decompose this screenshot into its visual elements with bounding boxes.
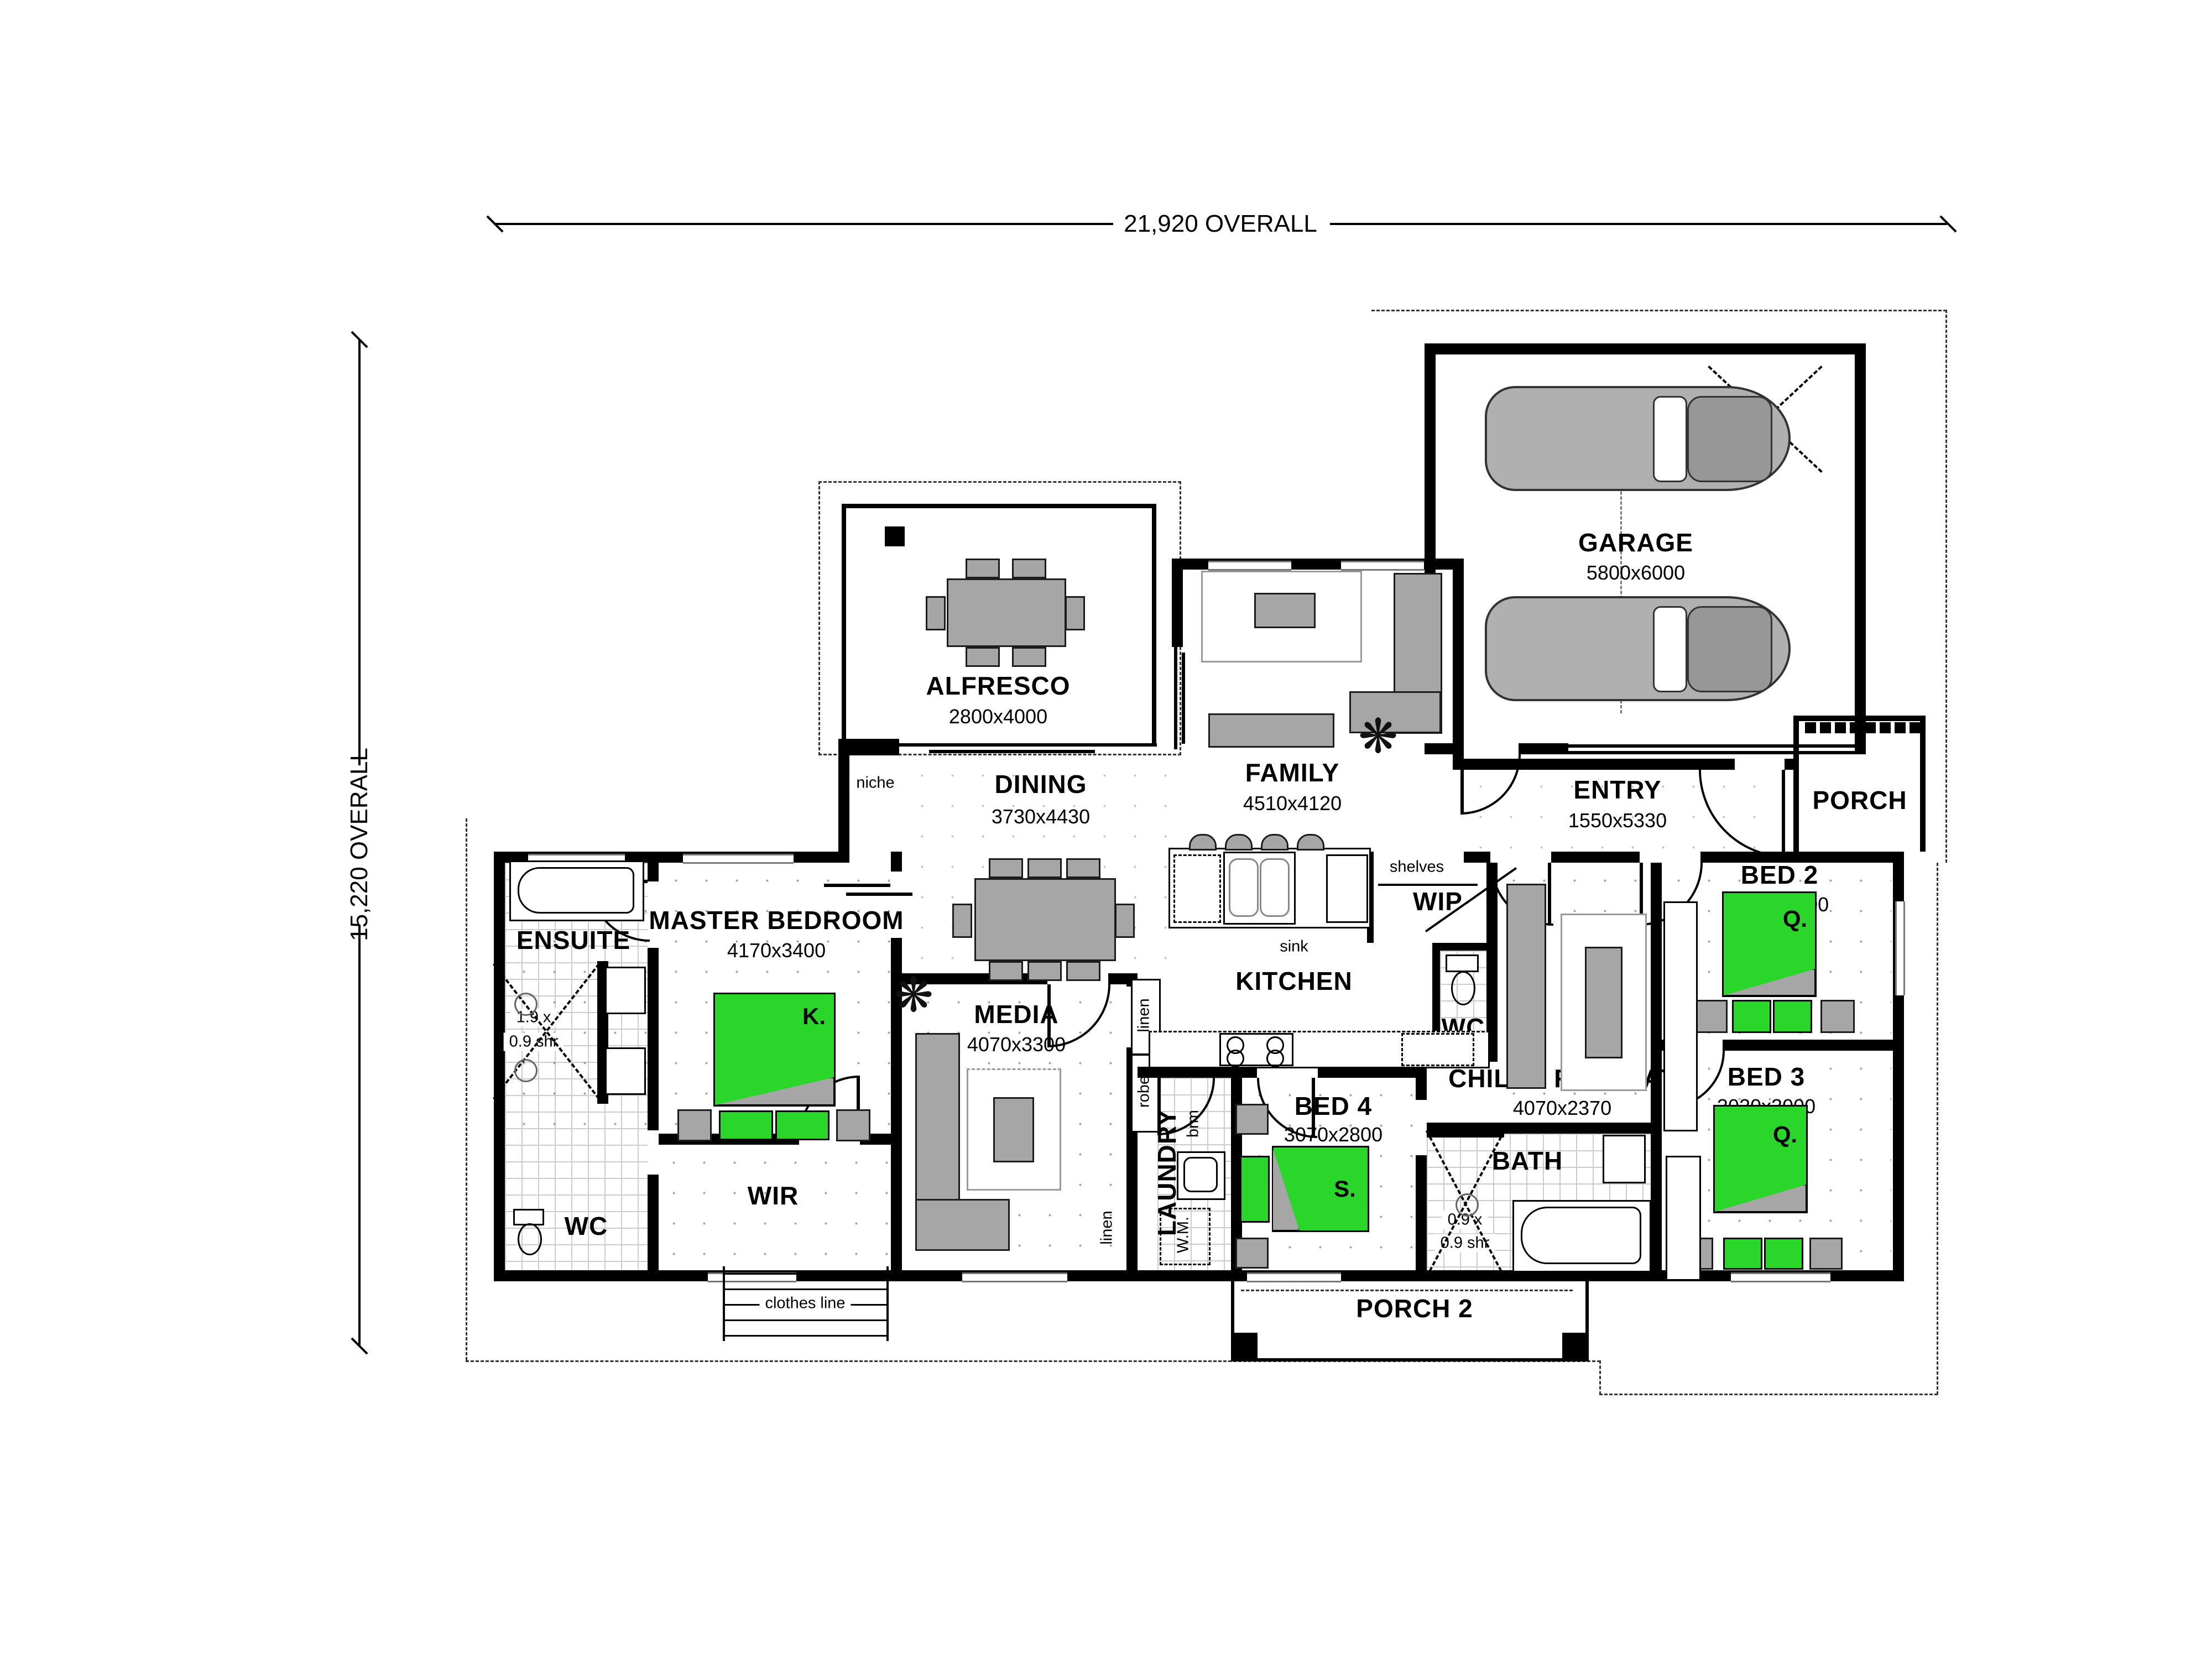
wing-wall-seg1 bbox=[1464, 852, 1490, 863]
family-window-2 bbox=[1341, 561, 1424, 571]
ensuite-shower-rose-2 bbox=[514, 1059, 538, 1082]
cooktop-burner-4 bbox=[1266, 1050, 1284, 1067]
master-nightstand-left bbox=[677, 1109, 712, 1141]
dining-table bbox=[974, 878, 1116, 961]
entry-door-jamb bbox=[1785, 759, 1793, 770]
porch-louvre-6 bbox=[1880, 722, 1891, 733]
family-slider-left2 bbox=[1182, 653, 1185, 744]
hall-wall-seg2 bbox=[1318, 1067, 1427, 1078]
room-label-family: FAMILY bbox=[1245, 758, 1339, 787]
car-1-roof bbox=[1687, 396, 1772, 482]
eaves-line-bottom-right bbox=[1599, 1394, 1938, 1395]
eaves-line-top bbox=[1371, 310, 1947, 311]
childs-retreat-sofa bbox=[1506, 884, 1546, 1089]
alfresco-wall-left bbox=[842, 504, 846, 746]
dishwasher-box bbox=[1326, 854, 1368, 923]
bed3-nightstand-right bbox=[1809, 1238, 1843, 1270]
shelves-label: shelves bbox=[1390, 858, 1444, 877]
laundry-tub-inner bbox=[1183, 1157, 1218, 1192]
master-east-wall-seg1 bbox=[891, 852, 902, 872]
kitchen-stool-4 bbox=[1297, 834, 1324, 851]
wip-shelves-line bbox=[1378, 884, 1478, 886]
room-label-bed2: BED 2 bbox=[1741, 860, 1818, 890]
childs-retreat-wall-bottom bbox=[1427, 1123, 1651, 1134]
media-sofa bbox=[915, 1033, 960, 1202]
dining-chair-1 bbox=[989, 858, 1023, 878]
eaves-line-right-upper bbox=[1945, 310, 1947, 863]
kitchen-sink-bowl-1 bbox=[1229, 858, 1259, 917]
ensuite-basin-2 bbox=[605, 1047, 646, 1095]
kitchen-stool-3 bbox=[1261, 834, 1288, 851]
car-2 bbox=[1485, 596, 1791, 701]
floor-plan-canvas: 21,920 OVERALL 15,220 OVERALL bbox=[0, 0, 2212, 1659]
bed3-robe bbox=[1666, 1156, 1701, 1281]
room-label-garage: GARAGE bbox=[1578, 528, 1693, 557]
clothes-line-wire-2 bbox=[723, 1288, 889, 1290]
room-dims-family: 4510x4120 bbox=[1243, 792, 1342, 815]
alfresco-slider-track1 bbox=[899, 743, 1157, 747]
master-pillow-2 bbox=[775, 1110, 830, 1140]
kitchen-stool-1 bbox=[1189, 834, 1217, 851]
linen-label-top: linen bbox=[1135, 998, 1154, 1032]
clothes-line-wire-5 bbox=[723, 1335, 889, 1337]
room-label-bed4: BED 4 bbox=[1295, 1091, 1372, 1121]
media-sofa-chaise bbox=[915, 1199, 1010, 1251]
alfresco-post bbox=[885, 526, 905, 546]
master-cavity-slider-1 bbox=[824, 884, 890, 887]
room-dims-alfresco: 2800x4000 bbox=[949, 705, 1047, 728]
room-label-entry: ENTRY bbox=[1573, 775, 1661, 805]
left-dimension-line-top bbox=[358, 340, 361, 765]
room-dims-bed4: 3070x2800 bbox=[1284, 1123, 1383, 1146]
top-dimension-line-right bbox=[1330, 223, 1947, 225]
hall-wall-seg1 bbox=[1138, 1067, 1257, 1078]
room-label-porch: PORCH bbox=[1812, 785, 1907, 815]
eaves-line-right-lower bbox=[1937, 863, 1938, 1395]
car-1 bbox=[1485, 386, 1791, 491]
cooktop-burner-2 bbox=[1227, 1050, 1244, 1067]
family-wall-right bbox=[1453, 559, 1464, 770]
dining-chair-8 bbox=[1115, 904, 1135, 938]
room-dims-dining: 3730x4430 bbox=[992, 805, 1090, 828]
bed3-bed-tag: Q. bbox=[1773, 1121, 1797, 1148]
bed4-window bbox=[1247, 1272, 1341, 1282]
dining-chair-7 bbox=[952, 904, 972, 938]
wing-wall-seg2 bbox=[1551, 852, 1640, 863]
alfresco-chair-5 bbox=[926, 596, 946, 630]
ensuite-toilet-bowl bbox=[518, 1223, 542, 1255]
clothes-line-wire-4 bbox=[723, 1319, 889, 1321]
dining-chair-4 bbox=[989, 961, 1023, 981]
fridge-box bbox=[1401, 1033, 1474, 1066]
alfresco-slider-stack bbox=[838, 739, 899, 755]
alfresco-chair-1 bbox=[966, 559, 1000, 578]
garage-wall-top bbox=[1425, 343, 1866, 354]
childs-retreat-door-leaf bbox=[1548, 863, 1551, 924]
bed4-bed-tag: S. bbox=[1334, 1176, 1356, 1202]
room-label-master: MASTER BEDROOM bbox=[649, 905, 904, 935]
porch-wall-right bbox=[1920, 716, 1926, 852]
room-dims-media: 4070x3300 bbox=[967, 1033, 1066, 1056]
ensuite-wall-seg1 bbox=[648, 852, 659, 881]
bath-wall-right bbox=[1651, 1123, 1662, 1281]
front-door-leaf bbox=[1782, 770, 1785, 857]
porch2-dashed-line bbox=[1241, 1290, 1573, 1291]
room-label-dining: DINING bbox=[995, 769, 1087, 799]
porch2-post-right bbox=[1562, 1333, 1589, 1359]
brm-label: brm bbox=[1185, 1110, 1203, 1138]
left-dimension-line-bottom bbox=[358, 925, 361, 1346]
niche-label: niche bbox=[856, 774, 894, 792]
car-2-roof bbox=[1687, 606, 1772, 692]
alfresco-chair-2 bbox=[1012, 559, 1046, 578]
bed2-robe bbox=[1663, 901, 1698, 1131]
porch2-post-left bbox=[1231, 1333, 1258, 1359]
room-dims-garage: 5800x6000 bbox=[1587, 561, 1685, 585]
family-slider-left1 bbox=[1174, 647, 1177, 749]
robe-label-bed4: robe bbox=[1135, 1076, 1154, 1108]
kitchen-stool-2 bbox=[1225, 834, 1253, 851]
media-window bbox=[962, 1272, 1067, 1282]
room-label-porch2: PORCH 2 bbox=[1356, 1293, 1473, 1323]
room-label-bed3: BED 3 bbox=[1728, 1062, 1805, 1092]
kitchen-sink-bowl-2 bbox=[1260, 858, 1290, 917]
bed4-pillow bbox=[1240, 1156, 1270, 1223]
porch-louvre-7 bbox=[1895, 722, 1906, 733]
top-dimension-line-left bbox=[494, 223, 1113, 225]
clothes-line-wire-1 bbox=[723, 1273, 889, 1275]
dining-chair-3 bbox=[1066, 858, 1100, 878]
porch-louvre-5 bbox=[1865, 722, 1876, 733]
porch-louvre-8 bbox=[1910, 722, 1921, 733]
ensuite-wall-seg2 bbox=[648, 948, 659, 1130]
eaves-line-left bbox=[466, 818, 467, 1360]
alfresco-chair-3 bbox=[966, 647, 1000, 667]
porch2-wall-bottom bbox=[1231, 1358, 1589, 1361]
garage-panel-door-line2 bbox=[1568, 751, 1855, 754]
room-label-kitchen: KITCHEN bbox=[1235, 966, 1352, 996]
room-label-wc-ensuite: WC bbox=[565, 1211, 608, 1241]
porch-wall-left bbox=[1793, 716, 1799, 852]
master-bed-tag: K. bbox=[802, 1003, 826, 1030]
room-label-alfresco: ALFRESCO bbox=[926, 671, 1071, 701]
bed3-pillow-1 bbox=[1723, 1238, 1762, 1270]
bed4-nightstand-top bbox=[1235, 1104, 1269, 1135]
bed2-nightstand-left bbox=[1693, 1000, 1728, 1033]
linen-label-bottom: linen bbox=[1098, 1211, 1117, 1244]
dining-chair-5 bbox=[1027, 961, 1062, 981]
car-2-windshield bbox=[1653, 606, 1687, 692]
bath-shower-rose bbox=[1455, 1193, 1479, 1217]
bed4-wall-right-seg1 bbox=[1416, 1078, 1427, 1100]
ensuite-wall-seg3 bbox=[648, 1175, 659, 1281]
room-label-media: MEDIA bbox=[974, 999, 1058, 1029]
family-sofa-bottom bbox=[1208, 713, 1334, 748]
garage-entry-door-leaf bbox=[1460, 754, 1464, 812]
room-dims-childs-retreat: 4070x2370 bbox=[1513, 1097, 1611, 1120]
wall-left-outer bbox=[494, 852, 505, 1281]
alfresco-chair-4 bbox=[1012, 647, 1046, 667]
garage-wall-bottom-seg2 bbox=[1519, 743, 1568, 754]
bed4-nightstand-bottom bbox=[1235, 1238, 1269, 1269]
left-dimension-label: 15,220 OVERALL bbox=[346, 748, 373, 941]
dining-chair-2 bbox=[1027, 858, 1062, 878]
childs-retreat-tv-unit bbox=[1585, 947, 1623, 1058]
master-nightstand-right bbox=[836, 1109, 870, 1141]
bath-tub-inner bbox=[1521, 1207, 1641, 1264]
master-cavity-slider-2 bbox=[846, 893, 912, 896]
garage-panel-door-line1 bbox=[1568, 744, 1855, 748]
porch-louvre-1 bbox=[1805, 722, 1816, 733]
bed2-nightstand-right bbox=[1820, 1000, 1855, 1033]
hall-wc-cistern bbox=[1446, 954, 1479, 972]
wip-wc-divider bbox=[1432, 943, 1486, 951]
bed2-pillow-2 bbox=[1773, 1000, 1812, 1033]
room-label-bath: BATH bbox=[1492, 1146, 1563, 1176]
porch-louvre-2 bbox=[1820, 722, 1831, 733]
alfresco-table bbox=[947, 578, 1066, 647]
bed3-window bbox=[1731, 1272, 1830, 1282]
dining-chair-6 bbox=[1066, 961, 1100, 981]
clothes-line-label: clothes line bbox=[759, 1295, 851, 1313]
alfresco-chair-6 bbox=[1065, 596, 1085, 630]
bed2-bed-tag: Q. bbox=[1783, 906, 1807, 932]
ensuite-bath-inner bbox=[518, 867, 634, 914]
ensuite-basin-1 bbox=[605, 967, 646, 1014]
alfresco-wall-top bbox=[842, 504, 1155, 508]
bed3-pillow-2 bbox=[1764, 1238, 1803, 1270]
garage-wall-right bbox=[1855, 343, 1866, 754]
bed2-window bbox=[1895, 901, 1905, 995]
microwave-box bbox=[1173, 854, 1221, 923]
hall-wc-bowl bbox=[1451, 971, 1475, 1005]
master-window bbox=[683, 854, 794, 864]
porch-louvre-3 bbox=[1835, 722, 1846, 733]
ensuite-shower-rose-1 bbox=[514, 993, 538, 1016]
room-dims-entry: 1550x5330 bbox=[1568, 809, 1667, 832]
garage-wall-bottom-seg1 bbox=[1425, 743, 1458, 754]
top-dimension-label: 21,920 OVERALL bbox=[1124, 210, 1317, 238]
wall-niche bbox=[838, 746, 849, 863]
eaves-line-porch2-step bbox=[1599, 1360, 1601, 1395]
bed3-wall-top-seg2 bbox=[1723, 1040, 1904, 1051]
room-label-wip: WIP bbox=[1413, 886, 1463, 916]
bath-basin bbox=[1603, 1135, 1646, 1183]
media-tv-unit bbox=[993, 1097, 1034, 1162]
room-label-ensuite: ENSUITE bbox=[517, 925, 630, 955]
master-pillow-1 bbox=[719, 1110, 773, 1140]
bed4-wall-right-seg2 bbox=[1416, 1155, 1427, 1281]
family-coffee-table bbox=[1254, 593, 1316, 628]
media-plant-icon: ❋ bbox=[894, 968, 933, 1023]
car-1-windshield bbox=[1653, 396, 1687, 482]
alfresco-wall-right bbox=[1152, 504, 1156, 746]
family-wall-left-upper bbox=[1172, 559, 1183, 647]
bed2-pillow-1 bbox=[1732, 1000, 1771, 1033]
family-plant-icon: ❋ bbox=[1358, 709, 1398, 764]
family-window-1 bbox=[1208, 561, 1291, 571]
washing-machine-box bbox=[1160, 1208, 1211, 1265]
room-label-wir: WIR bbox=[748, 1181, 799, 1211]
room-dims-master: 4170x3400 bbox=[727, 939, 826, 962]
alfresco-slider-track2 bbox=[929, 750, 1095, 753]
sink-label: sink bbox=[1280, 938, 1308, 956]
